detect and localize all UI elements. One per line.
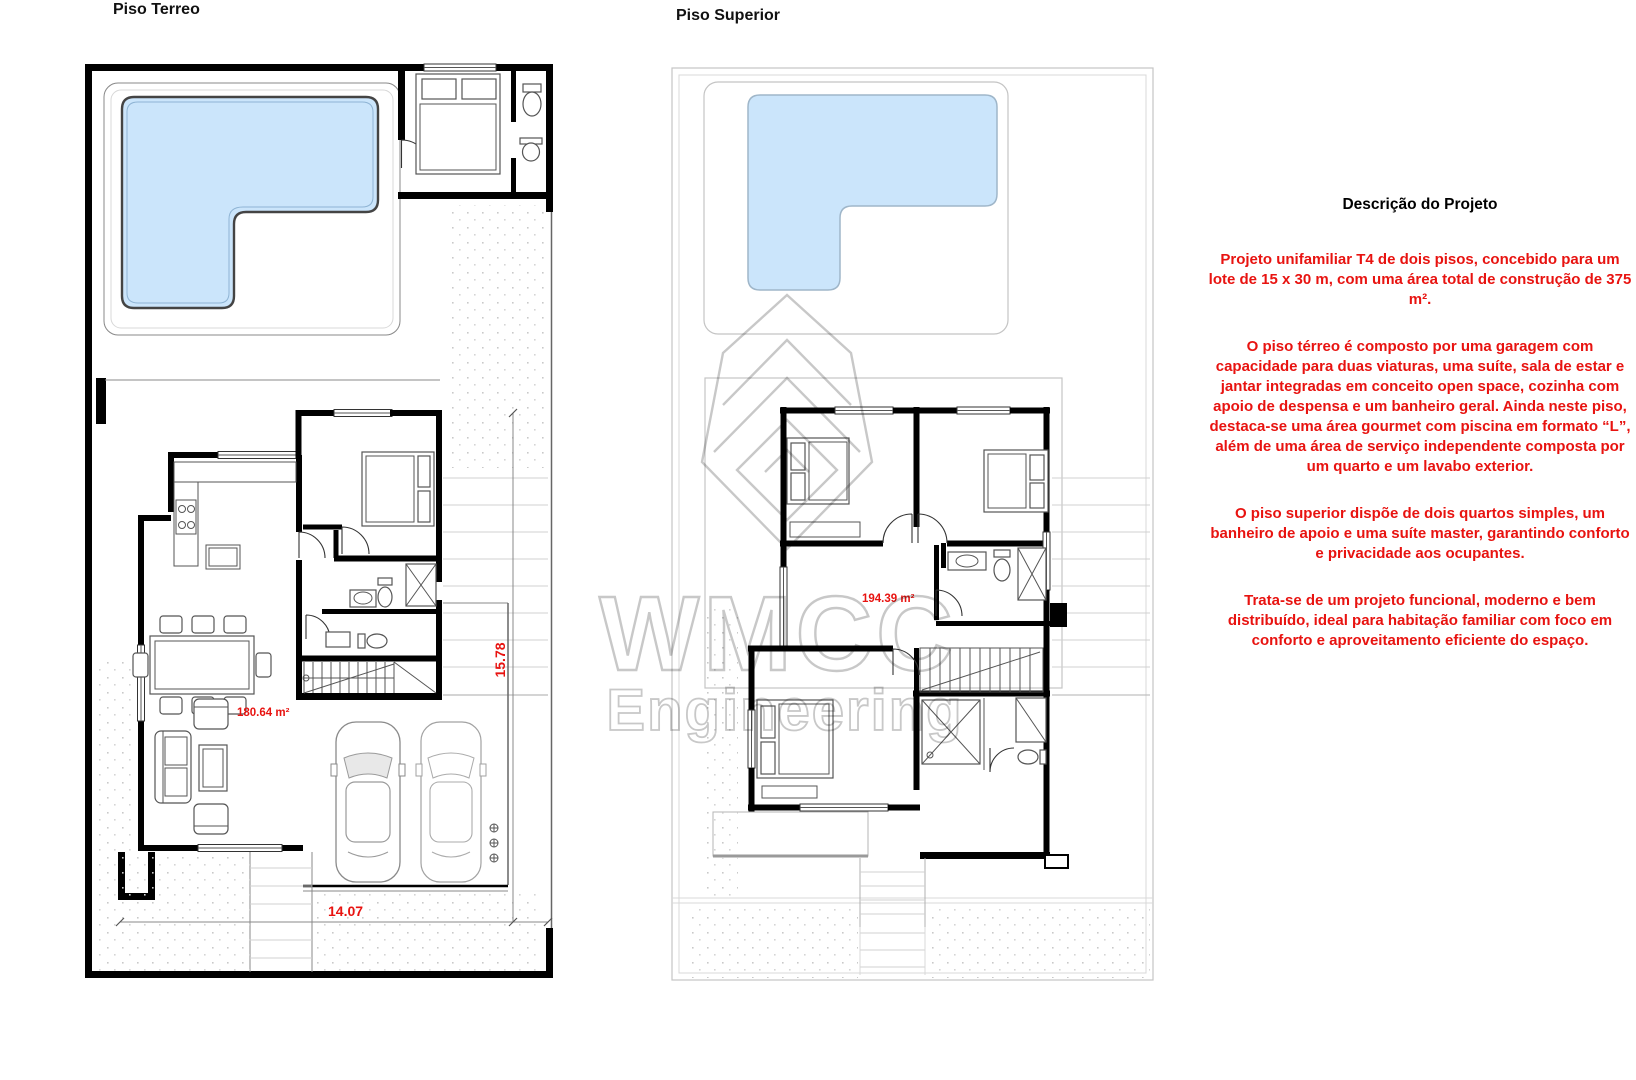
wc-toilet [358, 634, 387, 648]
bedroom-bed [362, 452, 434, 526]
bedroom2-bed [984, 450, 1048, 512]
description-paragraph: Trata-se de um projeto funcional, modern… [1208, 591, 1632, 651]
living-window-bottom [198, 845, 282, 852]
patio-gravel [447, 205, 547, 468]
svg-text:14.07: 14.07 [328, 903, 363, 919]
master-shower2 [1016, 698, 1046, 742]
sofa [155, 731, 191, 803]
stove-icon [176, 500, 196, 534]
ground-floor-plan: 14.07 15.78 180.64 m² [85, 60, 560, 985]
wall-jut [1045, 855, 1068, 868]
ground-area-label: 180.64 m² [237, 707, 290, 719]
armchair [194, 804, 228, 834]
kitchen-window [218, 452, 298, 459]
sliding-door [800, 804, 888, 811]
coffee-table [199, 745, 227, 791]
car [416, 722, 486, 882]
pool [122, 97, 378, 308]
watermark-line2: Engineering [606, 678, 963, 743]
description-paragraph: O piso superior dispõe de dois quartos s… [1208, 504, 1632, 564]
description-paragraph: Projeto unifamiliar T4 de dois pisos, co… [1208, 250, 1632, 310]
dimension-height: 15.78 [492, 409, 517, 926]
watermark-logo-icon [702, 295, 872, 549]
bedroom-window [334, 410, 392, 417]
description-paragraph: O piso térreo é composto por uma garagem… [1208, 337, 1632, 477]
suite-toilet [523, 84, 541, 116]
suite-bed [416, 74, 500, 174]
ground-floor-title: Piso Terreo [113, 1, 200, 19]
svg-text:15.78: 15.78 [492, 642, 508, 677]
wc-sink [326, 632, 350, 647]
car [331, 722, 405, 882]
upper-floor-title: Piso Superior [676, 7, 780, 25]
side-gravel [95, 662, 135, 855]
watermark-line1: WMCC [599, 575, 956, 693]
bathroom-shower [406, 564, 436, 606]
project-description: Descrição do Projeto Projeto unifamiliar… [1208, 196, 1632, 678]
bathroom-sink [350, 590, 376, 607]
wall-jut [1050, 603, 1067, 627]
yard-gravel [94, 855, 250, 971]
suite-window [424, 64, 496, 71]
light-symbols [490, 824, 498, 862]
kitchen-counter [174, 462, 296, 569]
description-heading: Descrição do Projeto [1208, 196, 1632, 214]
yard-gravel [688, 906, 858, 978]
watermark: WMCC Engineering [555, 255, 985, 755]
bathroom2-toilet [994, 550, 1010, 581]
master-toilet [1018, 750, 1046, 764]
yard-gravel [928, 906, 1150, 978]
front-walkway [250, 852, 312, 972]
armchair [194, 699, 228, 729]
bathroom-toilet [378, 578, 392, 607]
service-suite [398, 64, 553, 196]
fridge [206, 545, 240, 569]
stairs [303, 662, 436, 693]
bathroom2-shower [1018, 548, 1046, 600]
suite-sink [520, 138, 542, 161]
